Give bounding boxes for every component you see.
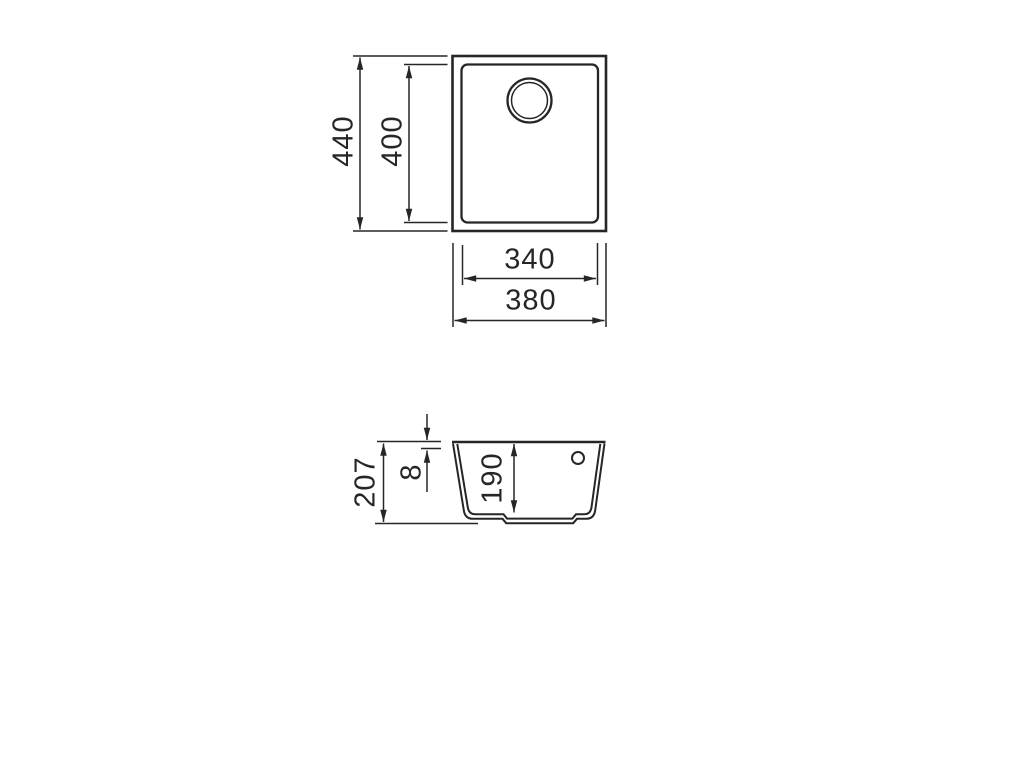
- sink-bowl-outline: [462, 65, 599, 223]
- drain-inner-circle: [512, 83, 548, 119]
- top-view: [353, 56, 606, 327]
- dim-label-overall-width: 380: [505, 287, 556, 316]
- dim-label-inner-height: 400: [379, 115, 408, 166]
- technical-drawing-canvas: 440 400 340 380 207 8 190: [0, 0, 1024, 768]
- overflow-hole: [572, 452, 584, 464]
- dim-label-bowl-depth: 190: [479, 452, 508, 503]
- dim-label-overall-depth: 207: [352, 456, 381, 507]
- dim-label-overall-height: 440: [330, 115, 359, 166]
- dim-label-inner-width: 340: [504, 246, 555, 275]
- dim-label-rim-thickness: 8: [398, 463, 427, 480]
- drain-outer-circle: [508, 79, 552, 123]
- drawing-linework: [0, 0, 1024, 768]
